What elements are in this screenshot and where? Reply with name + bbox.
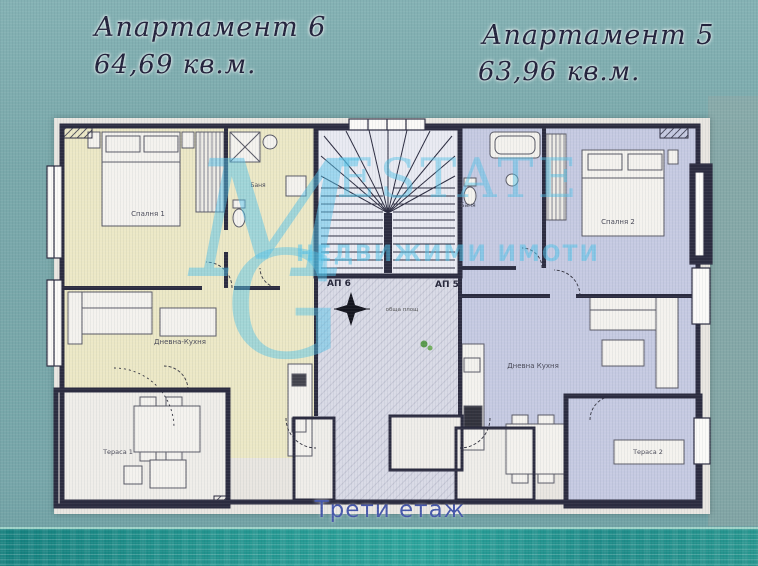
room-label-bath2: Баня [438,202,498,209]
room-label-living1: Дневна-Кухня [118,338,242,346]
apartment6-title: Апартамент 6 [94,12,326,43]
apartment5-title: Апартамент 5 [482,20,714,51]
photo-right-margin [708,96,758,526]
room-label-bedroom1: Спалня 1 [88,210,208,218]
floor-caption: Трети етаж [270,497,510,523]
corridor-note: обща площ [352,307,452,313]
sea-strip [0,527,758,566]
room-label-bedroom2: Спалня 2 [558,218,678,226]
room-label-bath1: Баня [228,182,288,189]
entrance-label-ap5: АП 5 [424,280,470,290]
room-label-terrace1: Тераса 1 [68,448,168,456]
entrance-label-ap6: АП 6 [316,279,362,289]
apartment6-area: 64,69 кв.м. [94,50,256,80]
room-label-living2: Дневна Кухня [468,362,598,370]
apartment5-area: 63,96 кв.м. [478,57,640,87]
room-label-terrace2: Тераса 2 [598,448,698,456]
screenshot-root: { "titles": { "apt6": "Апартамент 6", "a… [0,0,758,564]
